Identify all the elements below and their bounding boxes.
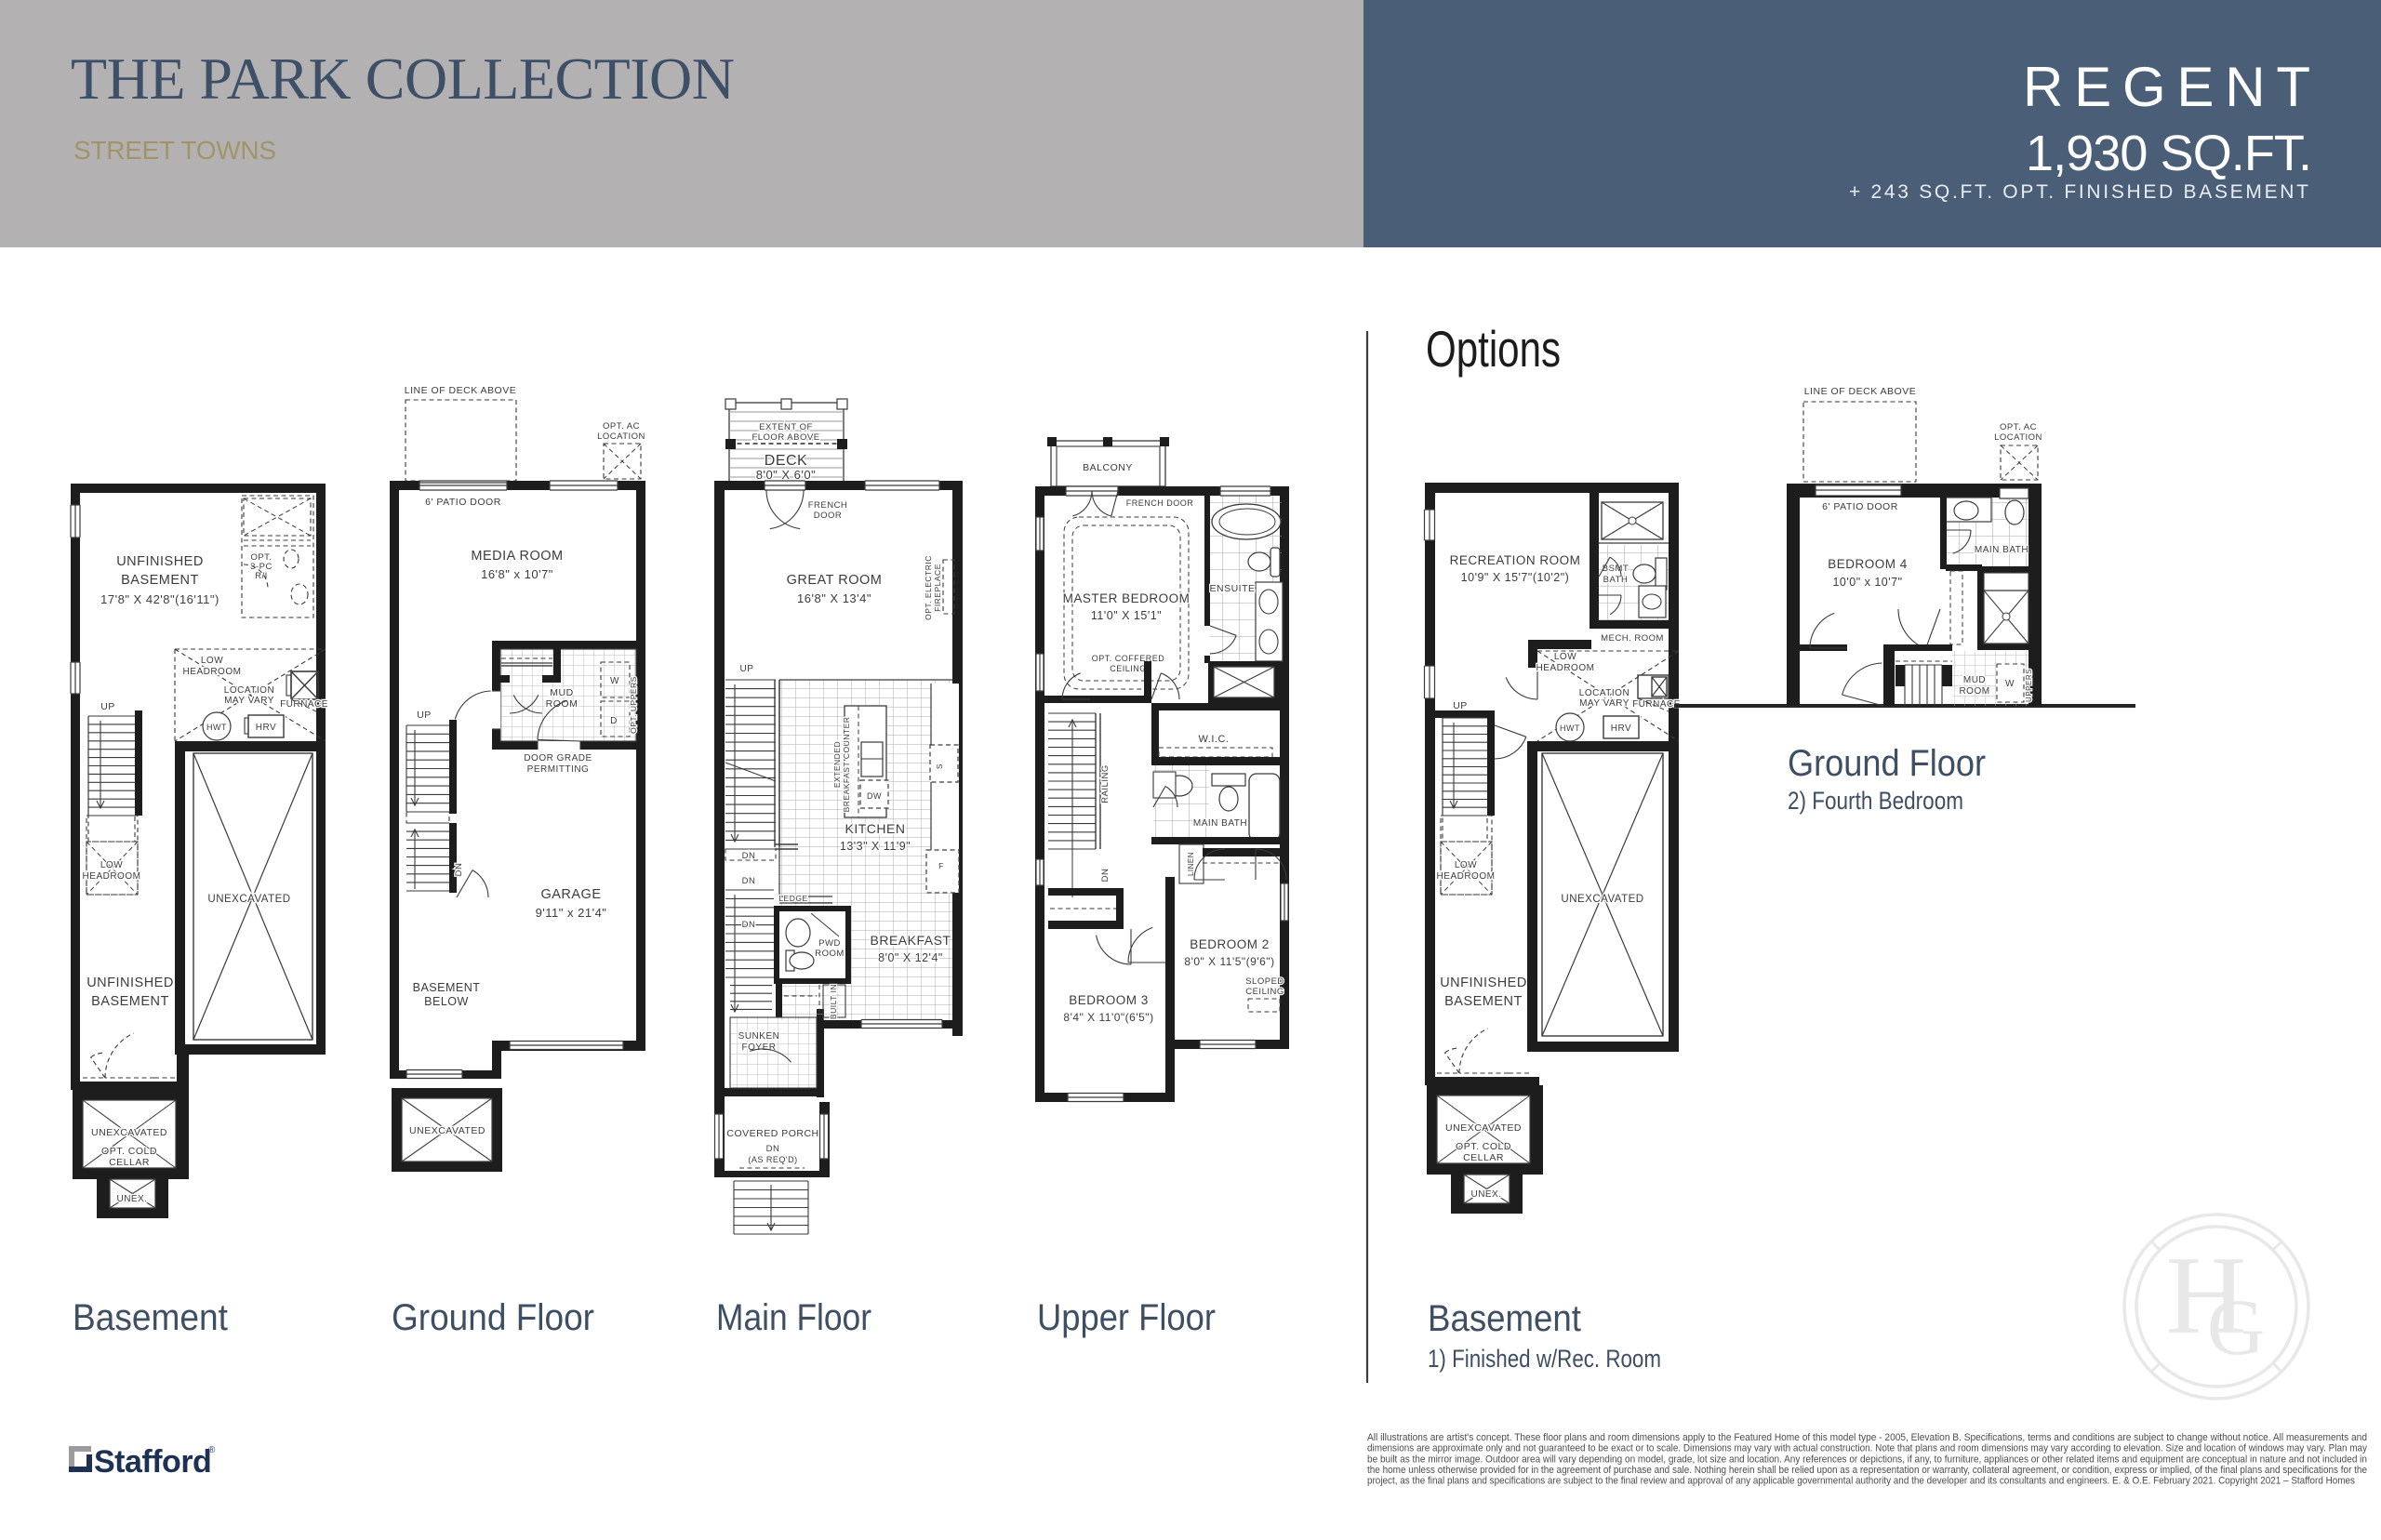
svg-text:8'4" X 11'0"(6'5"): 8'4" X 11'0"(6'5") (1063, 1011, 1153, 1024)
svg-text:2) Fourth Bedroom: 2) Fourth Bedroom (1788, 787, 1963, 815)
svg-text:W.I.C.: W.I.C. (1199, 734, 1230, 745)
svg-text:FRENCH: FRENCH (808, 500, 848, 511)
svg-text:LEDGE: LEDGE (778, 894, 807, 903)
svg-text:HEADROOM: HEADROOM (183, 667, 242, 677)
svg-text:S: S (935, 763, 944, 769)
svg-text:LOCATION: LOCATION (1994, 432, 2042, 443)
svg-text:FOYER: FOYER (742, 1042, 777, 1053)
svg-text:DN: DN (742, 851, 756, 861)
svg-text:UNEX.: UNEX. (1470, 1189, 1501, 1200)
svg-text:MECH. ROOM: MECH. ROOM (1601, 633, 1664, 644)
svg-text:HWT: HWT (206, 723, 227, 732)
svg-text:10'0" x 10'7": 10'0" x 10'7" (1832, 576, 1902, 589)
svg-text:Ground Floor: Ground Floor (1788, 743, 1986, 784)
svg-text:MUD: MUD (1963, 675, 1986, 685)
svg-text:Stafford: Stafford (94, 1444, 211, 1480)
svg-text:MAY VARY: MAY VARY (224, 696, 274, 706)
svg-text:FIREPLACE: FIREPLACE (933, 564, 942, 612)
svg-text:BALCONY: BALCONY (1083, 462, 1133, 473)
svg-text:ROOM: ROOM (1959, 686, 1989, 697)
svg-text:dimensions are approximate onl: dimensions are approximate only and not … (1367, 1443, 2367, 1454)
svg-text:HRV: HRV (1611, 724, 1631, 734)
svg-text:DN: DN (1100, 869, 1111, 883)
svg-text:MAIN BATH: MAIN BATH (1193, 818, 1247, 829)
svg-text:BREAKFAST COUNTER: BREAKFAST COUNTER (842, 717, 851, 813)
svg-text:BASEMENT: BASEMENT (413, 981, 481, 994)
svg-text:UNFINISHED: UNFINISHED (1440, 976, 1527, 990)
svg-text:project, as the final plans an: project, as the final plans and specific… (1367, 1476, 2355, 1487)
svg-text:PWD: PWD (818, 938, 841, 949)
svg-text:OPT. ELECTRIC: OPT. ELECTRIC (924, 555, 933, 620)
svg-text:HEADROOM: HEADROOM (83, 871, 141, 882)
svg-text:8'0" X 6'0": 8'0" X 6'0" (756, 468, 817, 482)
svg-text:UP: UP (100, 701, 115, 712)
svg-text:UNEXCAVATED: UNEXCAVATED (207, 894, 290, 905)
svg-text:STREET TOWNS: STREET TOWNS (73, 136, 276, 165)
svg-text:DOOR: DOOR (814, 511, 843, 521)
svg-text:FLOOR ABOVE: FLOOR ABOVE (752, 432, 819, 443)
svg-text:FRENCH DOOR: FRENCH DOOR (1126, 498, 1194, 508)
svg-text:D: D (610, 716, 618, 726)
svg-text:BEDROOM 4: BEDROOM 4 (1828, 557, 1908, 571)
svg-text:UNEXCAVATED: UNEXCAVATED (1445, 1122, 1522, 1134)
svg-text:LOW: LOW (201, 656, 223, 666)
svg-text:16'8" x 10'7": 16'8" x 10'7" (481, 567, 553, 581)
svg-text:GREAT ROOM: GREAT ROOM (787, 573, 883, 588)
svg-text:ROOM: ROOM (546, 698, 579, 710)
svg-text:HEADROOM: HEADROOM (1437, 871, 1496, 882)
svg-text:MAY VARY: MAY VARY (1579, 698, 1629, 709)
svg-text:HEADROOM: HEADROOM (1536, 663, 1595, 673)
svg-text:DOOR GRADE: DOOR GRADE (524, 753, 592, 763)
svg-text:LOW: LOW (100, 860, 123, 870)
svg-text:PERMITTING: PERMITTING (527, 764, 590, 775)
svg-text:LOCATION: LOCATION (597, 431, 645, 442)
svg-text:UP: UP (417, 710, 432, 721)
svg-text:BREAKFAST: BREAKFAST (871, 933, 951, 948)
svg-text:GARAGE: GARAGE (540, 887, 601, 902)
svg-text:OPT. COLD: OPT. COLD (1456, 1141, 1511, 1152)
svg-text:DECK: DECK (765, 453, 807, 469)
svg-text:KITCHEN: KITCHEN (845, 821, 906, 836)
svg-text:W: W (610, 676, 619, 686)
svg-text:the home unless otherwise prov: the home unless otherwise provided for i… (1367, 1465, 2367, 1476)
svg-text:LINE OF DECK ABOVE: LINE OF DECK ABOVE (1804, 386, 1916, 397)
svg-text:F: F (938, 861, 944, 870)
svg-text:CELLAR: CELLAR (1463, 1152, 1504, 1163)
svg-text:OPT. AC: OPT. AC (603, 421, 640, 431)
svg-text:UNEXCAVATED: UNEXCAVATED (91, 1127, 167, 1138)
svg-text:®: ® (208, 1445, 216, 1455)
svg-text:BSMT: BSMT (1603, 564, 1629, 574)
svg-text:UNEX.: UNEX. (116, 1194, 147, 1204)
svg-text:BASEMENT: BASEMENT (1444, 994, 1523, 1009)
svg-text:REGENT: REGENT (2023, 56, 2310, 118)
svg-text:ROOM: ROOM (815, 949, 845, 959)
svg-text:OPT. AC: OPT. AC (2000, 422, 2037, 432)
svg-text:LOCATION: LOCATION (1579, 688, 1629, 698)
svg-text:UNFINISHED: UNFINISHED (116, 554, 204, 569)
svg-text:CELLAR: CELLAR (109, 1157, 150, 1168)
svg-text:Ground Floor: Ground Floor (392, 1297, 594, 1338)
svg-text:Basement: Basement (73, 1297, 228, 1338)
svg-text:DN: DN (742, 876, 756, 886)
svg-text:1) Finished w/Rec. Room: 1) Finished w/Rec. Room (1428, 1345, 1661, 1373)
svg-text:RECREATION ROOM: RECREATION ROOM (1450, 553, 1581, 567)
svg-text:UP: UP (740, 664, 754, 674)
svg-text:OPT. COLD: OPT. COLD (101, 1146, 157, 1157)
svg-text:BUILT IN: BUILT IN (829, 984, 838, 1019)
svg-text:BEDROOM 2: BEDROOM 2 (1190, 937, 1270, 951)
svg-text:OPT. COFFERED: OPT. COFFERED (1092, 654, 1165, 663)
svg-text:COVERED PORCH: COVERED PORCH (726, 1128, 818, 1139)
svg-text:9'11" x 21'4": 9'11" x 21'4" (536, 906, 607, 920)
svg-text:16'8" X 13'4": 16'8" X 13'4" (797, 591, 871, 605)
svg-text:EXTENDED: EXTENDED (832, 741, 842, 788)
svg-text:13'3" X 11'9": 13'3" X 11'9" (840, 840, 911, 853)
svg-text:+ 243 SQ.FT. OPT. FINISHED BAS: + 243 SQ.FT. OPT. FINISHED BASEMENT (1849, 181, 2308, 203)
svg-text:Upper Floor: Upper Floor (1037, 1297, 1216, 1338)
svg-text:MAIN BATH: MAIN BATH (1975, 545, 2029, 555)
svg-text:Main Floor: Main Floor (716, 1297, 871, 1338)
svg-text:CEILING: CEILING (1245, 987, 1284, 997)
svg-text:UNFINISHED: UNFINISHED (86, 976, 174, 990)
svg-text:Options: Options (1426, 320, 1561, 378)
svg-text:MUD: MUD (550, 687, 573, 698)
svg-text:8'0" X 12'4": 8'0" X 12'4" (878, 951, 943, 964)
svg-text:UPPERS: UPPERS (2025, 669, 2033, 702)
svg-text:1,930 SQ.FT.: 1,930 SQ.FT. (2026, 126, 2312, 181)
svg-text:UNEXCAVATED: UNEXCAVATED (409, 1125, 486, 1136)
svg-text:EXTENT OF: EXTENT OF (759, 422, 813, 432)
svg-text:6' PATIO DOOR: 6' PATIO DOOR (1822, 501, 1898, 512)
svg-text:BELOW: BELOW (424, 995, 469, 1008)
svg-text:LOW: LOW (1455, 860, 1477, 870)
svg-text:Basement: Basement (1428, 1298, 1581, 1339)
svg-text:17'8" X 42'8"(16'11"): 17'8" X 42'8"(16'11") (100, 592, 219, 606)
svg-text:CEILING: CEILING (1110, 664, 1147, 673)
svg-text:THE PARK COLLECTION: THE PARK COLLECTION (71, 46, 735, 112)
svg-text:MEDIA ROOM: MEDIA ROOM (471, 549, 563, 564)
svg-text:LOW: LOW (1554, 652, 1576, 662)
svg-text:G: G (2207, 1282, 2265, 1372)
svg-text:11'0" X 15'1": 11'0" X 15'1" (1091, 609, 1162, 622)
svg-text:ENSUITE: ENSUITE (1209, 583, 1255, 594)
svg-text:be built as the mirror image.: be built as the mirror image. Outdoor ar… (1367, 1454, 2367, 1465)
svg-text:DN: DN (766, 1144, 780, 1154)
svg-text:SUNKEN: SUNKEN (738, 1031, 780, 1042)
svg-text:LOCATION: LOCATION (224, 685, 274, 696)
svg-text:OPT. UPPERS: OPT. UPPERS (629, 676, 638, 734)
svg-text:DN: DN (742, 920, 756, 930)
svg-text:UP: UP (1453, 700, 1468, 711)
svg-text:HRV: HRV (256, 723, 276, 733)
svg-text:BATH: BATH (1603, 575, 1629, 585)
svg-text:W: W (2005, 679, 2015, 689)
svg-text:BEDROOM 3: BEDROOM 3 (1069, 993, 1149, 1007)
svg-text:UNEXCAVATED: UNEXCAVATED (1561, 894, 1643, 905)
svg-text:FURNACE: FURNACE (280, 699, 328, 710)
svg-text:6' PATIO DOOR: 6' PATIO DOOR (425, 497, 501, 508)
svg-text:SLOPED: SLOPED (1245, 976, 1284, 987)
svg-text:BASEMENT: BASEMENT (91, 994, 169, 1009)
svg-text:BASEMENT: BASEMENT (121, 573, 199, 588)
svg-text:HWT: HWT (1560, 724, 1580, 733)
svg-text:All illustrations are artist's: All illustrations are artist's concept. … (1367, 1432, 2367, 1443)
svg-text:DW: DW (867, 791, 882, 801)
svg-text:LINEN: LINEN (1187, 852, 1195, 876)
svg-text:FURNACE: FURNACE (1632, 699, 1681, 710)
svg-text:RAILING: RAILING (1100, 764, 1111, 803)
svg-text:8'0" X 11'5"(9'6"): 8'0" X 11'5"(9'6") (1184, 955, 1274, 968)
svg-text:10'9" X 15'7"(10'2"): 10'9" X 15'7"(10'2") (1461, 571, 1570, 584)
svg-text:LINE OF DECK ABOVE: LINE OF DECK ABOVE (405, 385, 516, 396)
svg-text:(AS REQ'D): (AS REQ'D) (748, 1155, 797, 1164)
svg-text:MASTER BEDROOM: MASTER BEDROOM (1063, 591, 1190, 605)
svg-text:DN: DN (454, 863, 464, 877)
